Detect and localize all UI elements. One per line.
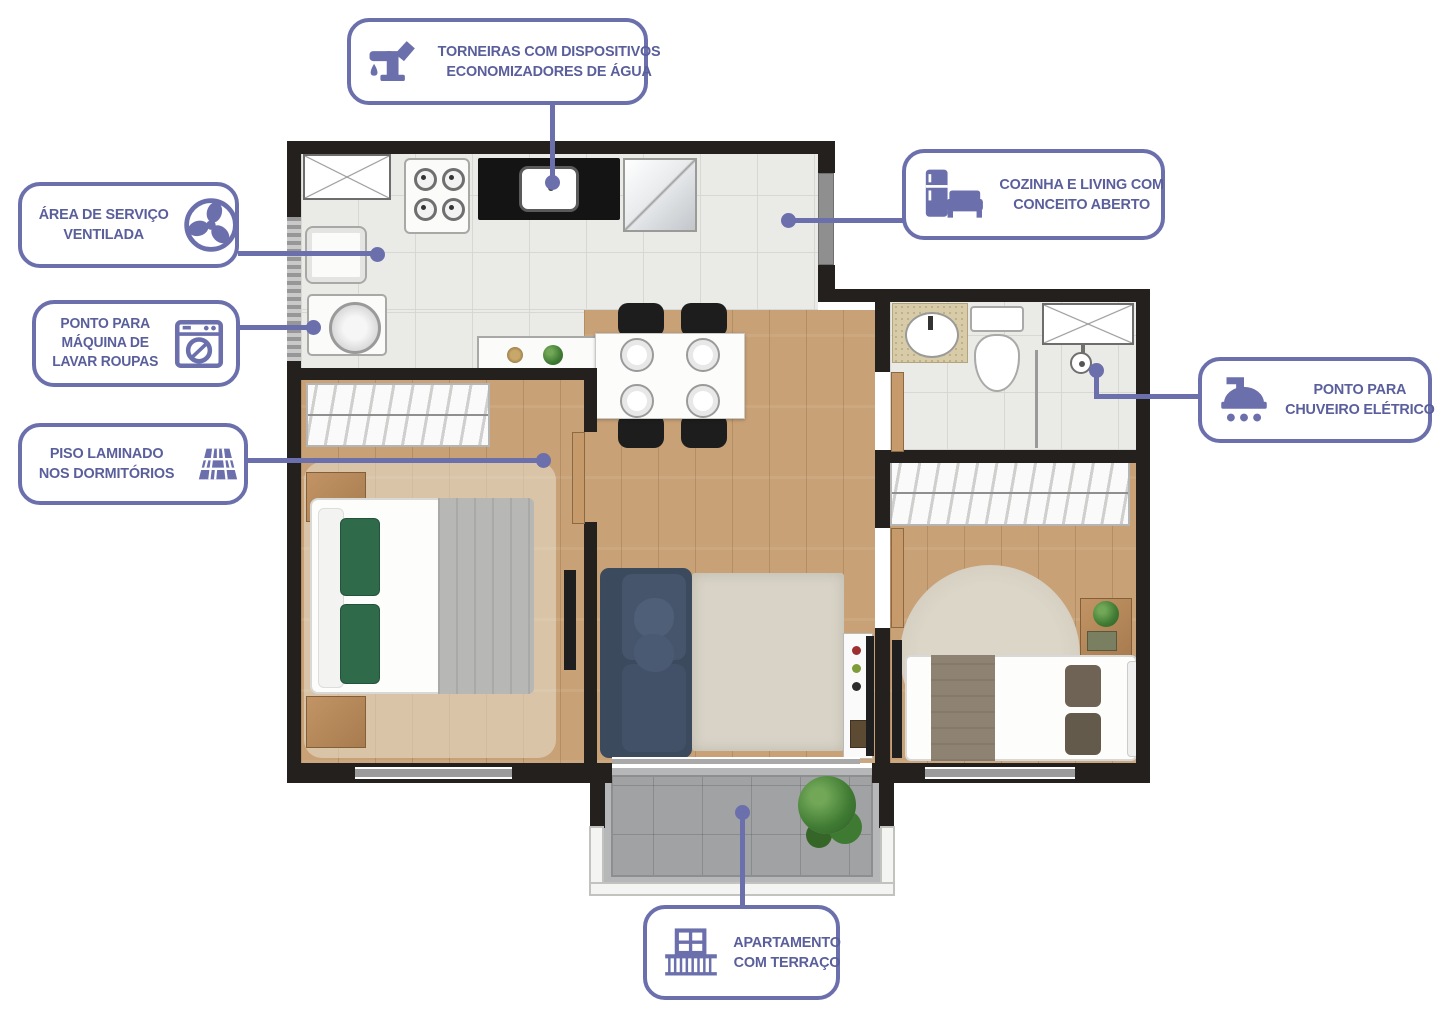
laminate-floor-icon [187, 441, 249, 487]
tv-living [866, 636, 874, 756]
stove [404, 158, 470, 234]
terrace-parapet [589, 826, 604, 886]
callout-text-line: VENTILADA [39, 225, 169, 245]
bedroom1-window [355, 767, 512, 779]
single-bed [905, 655, 1137, 761]
bowl-decor [507, 347, 523, 363]
bathroom-door [891, 372, 904, 452]
sofa [600, 568, 692, 758]
kitchen-living-icon [920, 166, 986, 224]
terrace-wall [879, 763, 894, 828]
fan-icon [181, 195, 241, 255]
wall [818, 141, 835, 173]
wall [818, 289, 1150, 302]
floor-plan: TORNEIRAS COM DISPOSITIVOS ECONOMIZADORE… [0, 0, 1443, 1017]
double-bed [310, 498, 534, 694]
wall [875, 450, 890, 528]
callout-chuveiro: PONTO PARA CHUVEIRO ELÉTRICO [1198, 357, 1432, 443]
terrace-plant [798, 776, 856, 834]
bedroom2-window [925, 767, 1075, 779]
leader-line [550, 100, 555, 182]
upper-cabinet [303, 154, 391, 200]
tv-bedroom2 [892, 640, 902, 758]
callout-text-line: COZINHA E LIVING COM [999, 175, 1163, 195]
callout-text-line: PISO LAMINADO [39, 444, 175, 464]
leader-dot [306, 320, 321, 335]
callout-area-servico: ÁREA DE SERVIÇO VENTILADA [18, 182, 239, 268]
leader-dot [1089, 363, 1104, 378]
callout-text-line: ECONOMIZADORES DE ÁGUA [438, 62, 661, 82]
faucet-water-drop-icon [365, 33, 423, 91]
bedroom1-door [572, 432, 585, 524]
callout-text-line: CHUVEIRO ELÉTRICO [1285, 400, 1435, 420]
callout-piso-laminado: PISO LAMINADO NOS DORMITÓRIOS [18, 423, 248, 505]
callout-text-line: NOS DORMITÓRIOS [39, 464, 175, 484]
bathroom-shelf [1042, 303, 1134, 345]
tv-bedroom1 [564, 570, 576, 670]
wall [890, 450, 1136, 463]
wall [1136, 289, 1150, 783]
dining-chair [618, 303, 664, 337]
laptop [1087, 631, 1117, 651]
terrace-sliding-door [612, 757, 860, 766]
terrace-wall [590, 763, 605, 828]
balcony-icon [661, 926, 721, 980]
dining-chair [618, 414, 664, 448]
callout-cozinha-living: COZINHA E LIVING COM CONCEITO ABERTO [902, 149, 1165, 240]
leader-line [1094, 394, 1200, 399]
wardrobe [306, 383, 490, 447]
bathroom-vanity [892, 303, 968, 363]
callout-text-line: TORNEIRAS COM DISPOSITIVOS [438, 42, 661, 62]
wall [287, 361, 301, 783]
callout-text-line: PONTO PARA [52, 315, 158, 334]
callout-torneiras: TORNEIRAS COM DISPOSITIVOS ECONOMIZADORE… [347, 18, 648, 105]
callout-text-line: LAVAR ROUPAS [52, 353, 158, 372]
leader-dot [781, 213, 796, 228]
shower-icon [1216, 372, 1272, 428]
desk-plant [1093, 601, 1119, 627]
wall [584, 522, 597, 763]
wall [287, 368, 597, 380]
dining-chair [681, 414, 727, 448]
area-rug [692, 573, 844, 751]
plant-decor [543, 345, 563, 365]
wall [875, 628, 890, 763]
leader-dot [370, 247, 385, 262]
leader-line [740, 814, 745, 907]
toilet [970, 306, 1024, 394]
leader-line [238, 251, 378, 256]
wall [875, 302, 890, 372]
service-louver-window [287, 217, 301, 361]
bedroom2-door [891, 528, 904, 628]
callout-text-line: CONCEITO ABERTO [999, 195, 1163, 215]
wardrobe [890, 460, 1130, 526]
leader-dot [545, 175, 560, 190]
leader-line [788, 218, 904, 223]
callout-text-line: PONTO PARA [1285, 380, 1435, 400]
callout-text-line: ÁREA DE SERVIÇO [39, 205, 169, 225]
callout-terraco: APARTAMENTO COM TERRAÇO [643, 905, 840, 1000]
callout-text-line: COM TERRAÇO [733, 953, 840, 973]
leader-dot [536, 453, 551, 468]
shower-partition [1035, 350, 1038, 448]
callout-maquina-lavar: PONTO PARA MÁQUINA DE LAVAR ROUPAS [32, 300, 240, 387]
wall [584, 368, 597, 432]
wall [287, 141, 301, 217]
leader-line [247, 458, 545, 463]
fridge [623, 158, 697, 232]
desk [1080, 598, 1132, 656]
terrace-parapet [880, 826, 895, 886]
nightstand [306, 696, 366, 748]
dining-chair [681, 303, 727, 337]
washing-machine-icon [170, 315, 228, 373]
dining-table [595, 333, 745, 419]
callout-text-line: MÁQUINA DE [52, 334, 158, 353]
callout-text-line: APARTAMENTO [733, 933, 840, 953]
leader-dot [735, 805, 750, 820]
